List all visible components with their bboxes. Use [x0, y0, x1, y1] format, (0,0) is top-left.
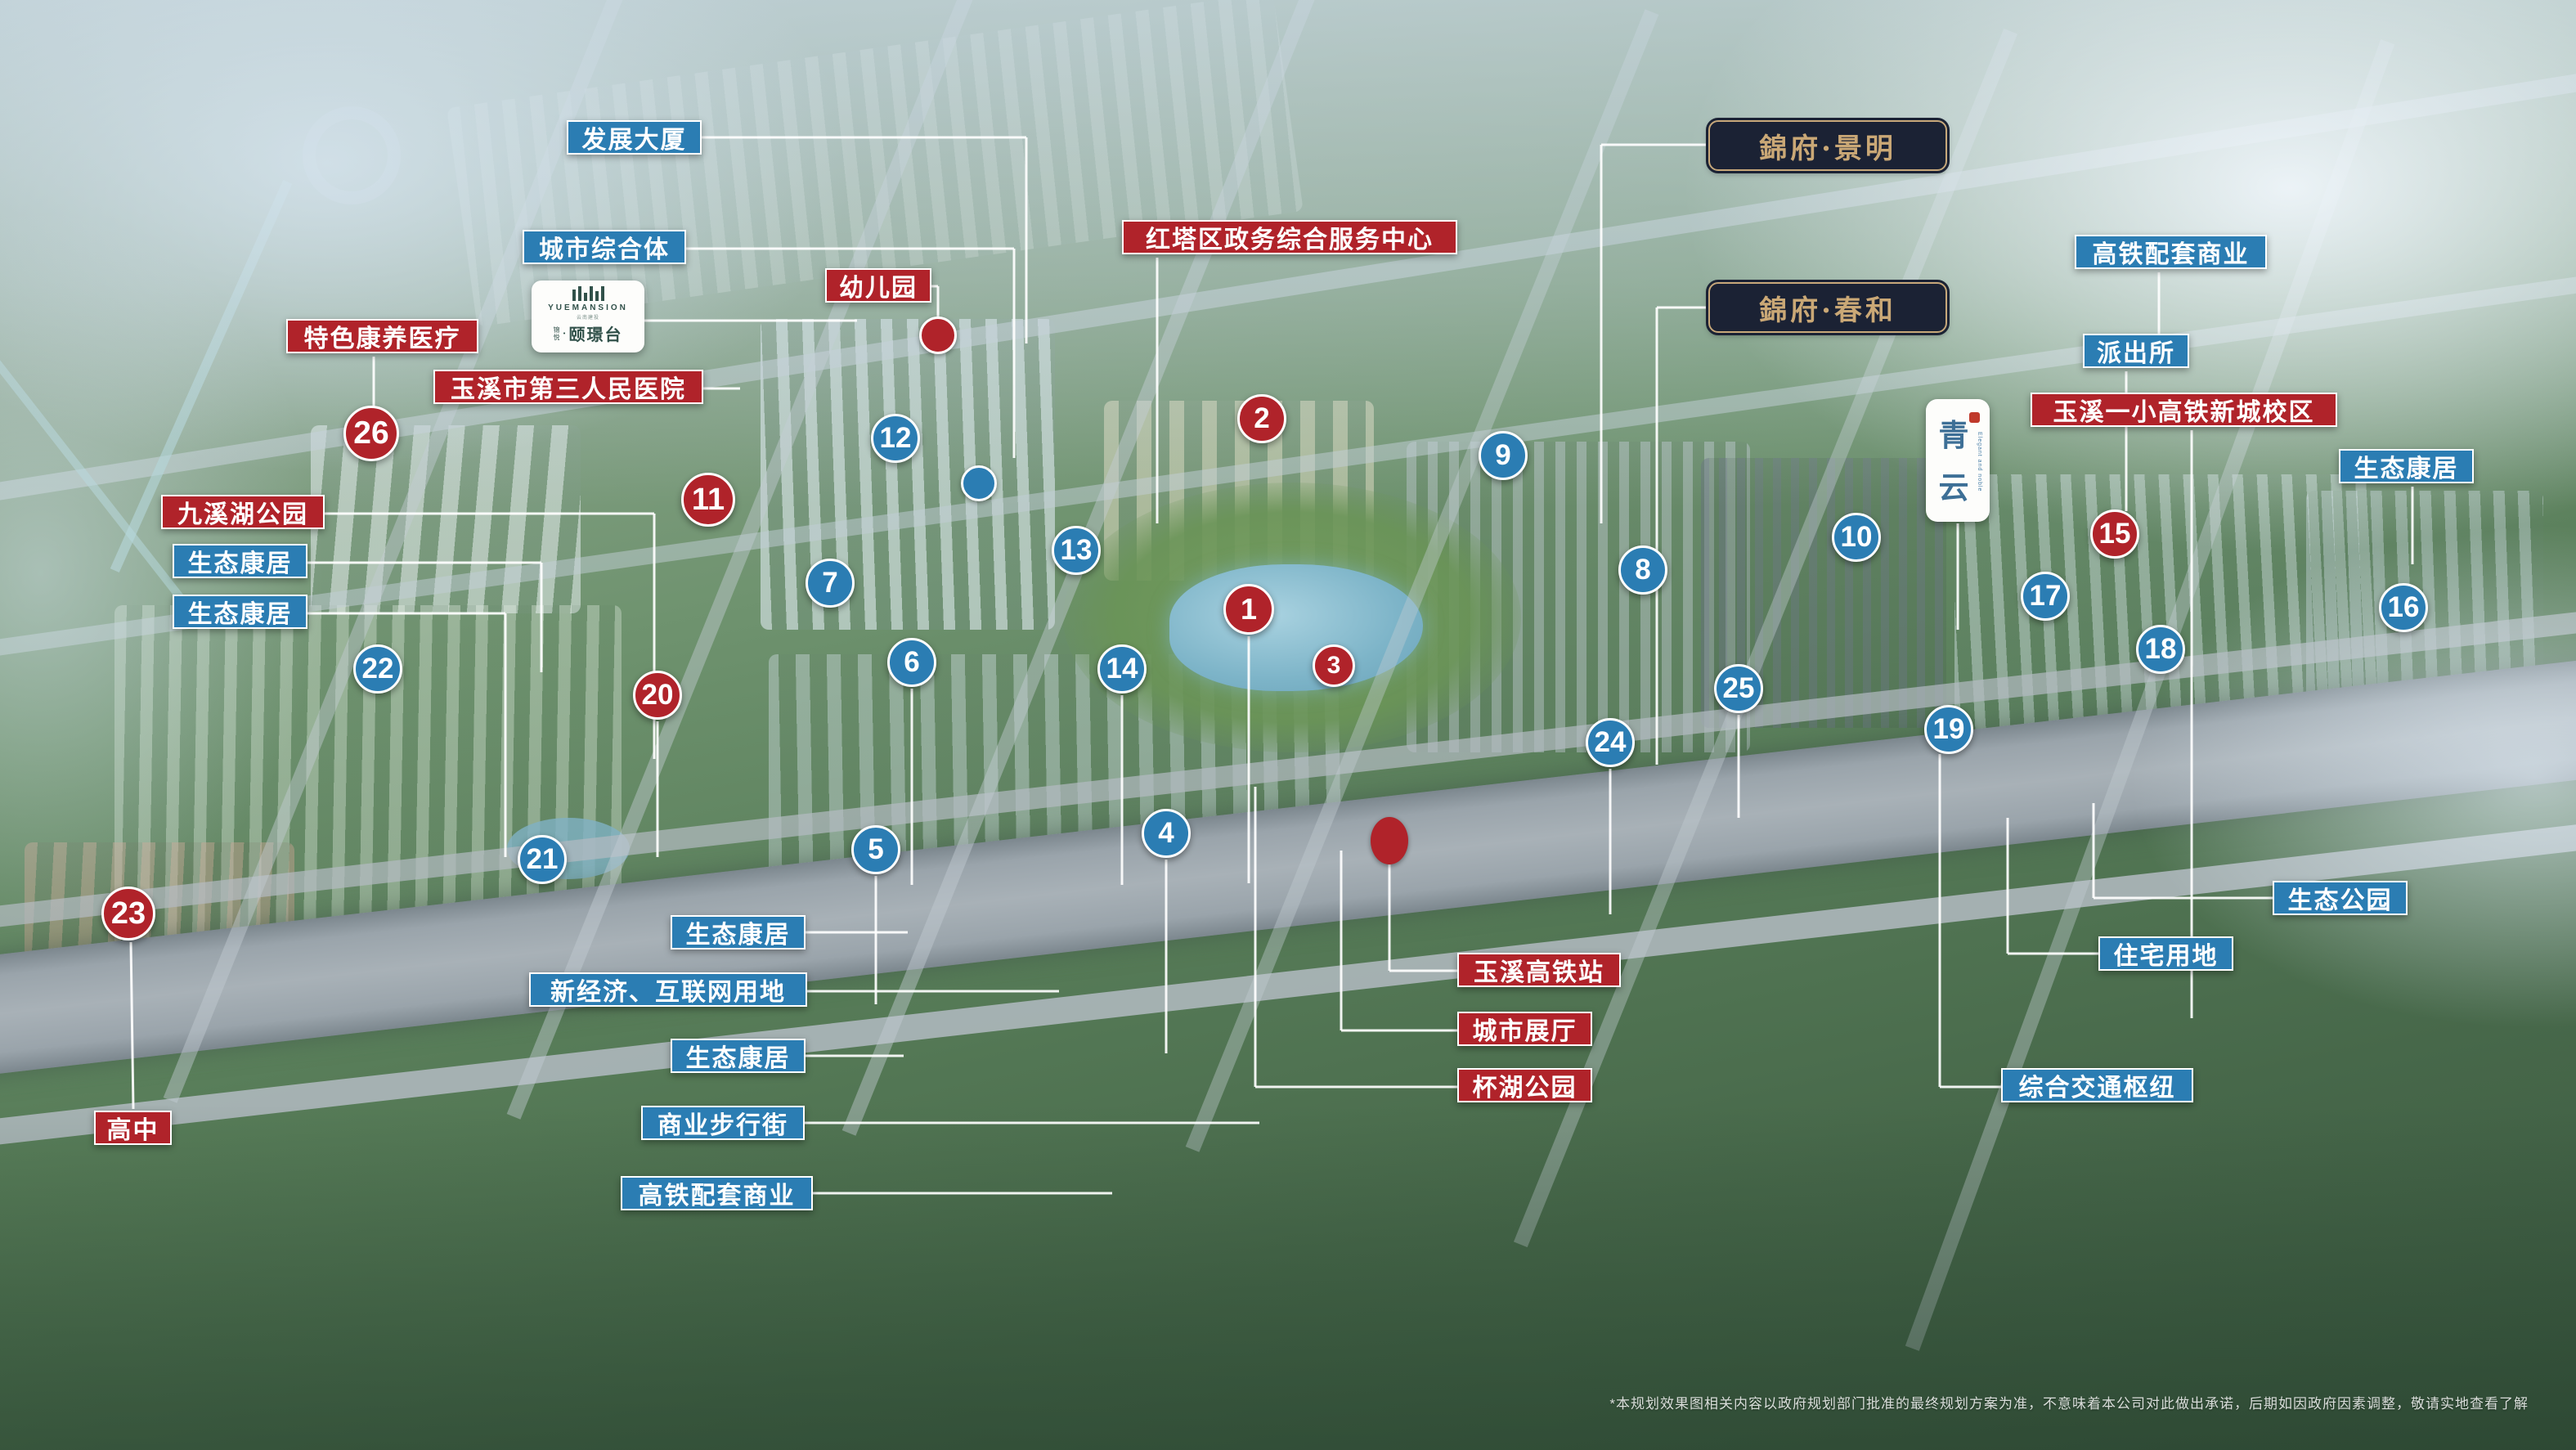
yuemansion-brand-prefix: 锦悦 [553, 326, 559, 341]
leader-segment-37 [131, 942, 133, 1109]
marker-8: 8 [1618, 545, 1667, 595]
marker-25: 25 [1714, 664, 1763, 713]
yuemansion-tagline: 云南建投 [532, 313, 644, 321]
label-gaotie-peitao-bottom: 高铁配套商业 [621, 1176, 813, 1210]
leader-lines [0, 0, 2576, 1450]
label-beihu-gongyuan: 杯湖公园 [1457, 1068, 1592, 1102]
label-shengtai-kangju-left-2: 生态康居 [173, 595, 307, 629]
disclaimer-text: *本规划效果图相关内容以政府规划部门批准的最终规划方案为准，不意味着本公司对此做… [1609, 1392, 2529, 1412]
yuemansion-icon [532, 286, 644, 301]
marker-13: 13 [1052, 526, 1101, 575]
label-shengtai-kangju-bottom-1: 生态康居 [671, 915, 806, 949]
label-shengtai-kangju-right: 生态康居 [2339, 449, 2474, 483]
label-fazhan-dasha: 发展大厦 [567, 120, 702, 155]
marker-16: 16 [2379, 583, 2428, 632]
label-jiuxihu-gongyuan: 九溪湖公园 [161, 495, 325, 529]
marker-15: 15 [2090, 510, 2139, 559]
marker-26: 26 [343, 406, 399, 461]
marker-3: 3 [1313, 644, 1355, 687]
qingyun-side-text: Elegant and noble [1977, 432, 1982, 492]
masterplan-map: 发展大厦城市综合体高铁配套商业派出所生态康居生态康居生态康居生态康居新经济、互联… [0, 0, 2576, 1450]
label-gaotie-peitao-top: 高铁配套商业 [2075, 235, 2267, 269]
marker-20: 20 [633, 671, 682, 720]
yuemansion-brand-dot: · [562, 325, 566, 341]
kindergarten-dot [919, 316, 957, 354]
label-shengtai-kangju-left-1: 生态康居 [173, 544, 307, 578]
label-zonghe-jiaotong-shuniu: 综合交通枢纽 [2001, 1068, 2193, 1102]
yuemansion-brand-name: 颐璟台 [569, 321, 623, 345]
label-hongta-zhengwu-zhongxin: 红塔区政务综合服务中心 [1122, 220, 1457, 254]
label-tese-kangyang-yiliao: 特色康养医疗 [286, 319, 478, 353]
marker-11: 11 [681, 473, 735, 527]
marker-24: 24 [1586, 718, 1635, 767]
marker-5: 5 [851, 825, 900, 874]
label-jinfu-jingming: 錦府·景明 [1708, 120, 1947, 171]
label-shengtai-kangju-bottom-2: 生态康居 [671, 1039, 806, 1073]
qingyun-logo: 青 云 Elegant and noble [1926, 399, 1990, 522]
station-dot [1371, 817, 1408, 864]
label-chengshi-zongheti: 城市综合体 [523, 230, 686, 264]
marker-14: 14 [1097, 644, 1147, 694]
label-jinfu-chunhe: 錦府·春和 [1708, 282, 1947, 333]
yuemansion-brand-en: YUEMANSION [532, 303, 644, 312]
label-yuxi-disan-yiyuan: 玉溪市第三人民医院 [433, 370, 703, 404]
marker-7: 7 [806, 559, 855, 608]
label-gaozhong: 高中 [94, 1111, 172, 1145]
marker-23: 23 [101, 887, 155, 940]
label-shengtai-gongyuan: 生态公园 [2273, 881, 2408, 915]
yuemansion-brand-cn: 锦悦 · 颐璟台 [532, 321, 644, 345]
marker-18: 18 [2136, 625, 2185, 674]
marker-22: 22 [353, 644, 402, 694]
marker-1: 1 [1223, 584, 1274, 635]
label-youeryuan: 幼儿园 [825, 268, 931, 303]
marker-12: 12 [871, 414, 920, 463]
marker-19: 19 [1924, 705, 1973, 754]
qingyun-seal-icon [1969, 412, 1980, 423]
label-shangye-buxingjie: 商业步行街 [641, 1106, 805, 1140]
marker-9: 9 [1479, 431, 1528, 480]
marker-10: 10 [1832, 513, 1881, 562]
marker-6: 6 [887, 638, 936, 687]
qingyun-char-1: 青 [1937, 411, 1970, 455]
marker-2: 2 [1237, 394, 1286, 443]
label-chengshi-zhanting: 城市展厅 [1457, 1012, 1592, 1046]
label-paichusuo: 派出所 [2083, 334, 2189, 368]
community-dot [961, 465, 997, 501]
label-yuxi-yixiao-xiaoqu: 玉溪一小高铁新城校区 [2031, 393, 2337, 427]
marker-17: 17 [2021, 572, 2070, 621]
yuemansion-logo: YUEMANSION 云南建投 锦悦 · 颐璟台 [532, 281, 644, 352]
label-xinjingji-hulianwang: 新经济、互联网用地 [529, 972, 807, 1007]
marker-4: 4 [1142, 809, 1191, 858]
label-yuxi-gaotiezhan: 玉溪高铁站 [1457, 953, 1621, 987]
qingyun-char-2: 云 [1937, 463, 1970, 507]
label-zhuzhai-yongdi: 住宅用地 [2098, 936, 2233, 971]
marker-21: 21 [518, 835, 567, 884]
